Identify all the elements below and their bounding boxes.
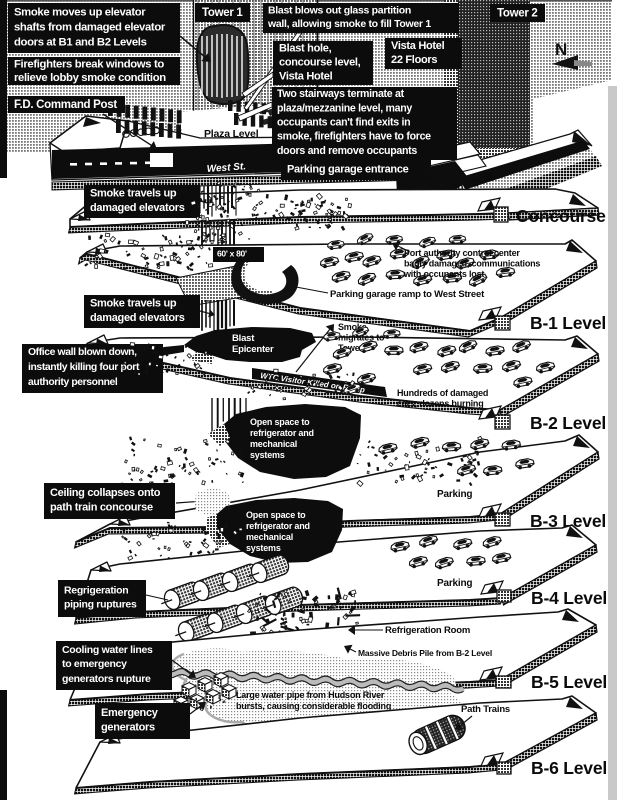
svg-text:Office wall blown down,: Office wall blown down,	[28, 347, 137, 358]
svg-text:Massive Debris Pile from B-2 L: Massive Debris Pile from B-2 Level	[358, 648, 492, 658]
svg-text:damaged elevators: damaged elevators	[90, 312, 185, 324]
svg-text:Blast hole,: Blast hole,	[279, 43, 332, 55]
svg-text:Port authority control center: Port authority control center	[404, 248, 520, 258]
svg-text:wall, allowing smoke to fill T: wall, allowing smoke to fill Tower 1	[267, 18, 431, 30]
svg-text:Parking garage ramp to West St: Parking garage ramp to West Street	[330, 289, 485, 300]
svg-text:B-4 Level: B-4 Level	[531, 588, 607, 608]
svg-text:B-2 Level: B-2 Level	[530, 413, 606, 433]
svg-text:doors and remove occupants: doors and remove occupants	[277, 145, 417, 157]
svg-text:refrigerator and: refrigerator and	[246, 521, 310, 531]
svg-text:authority personnel: authority personnel	[28, 377, 118, 388]
svg-text:N: N	[555, 40, 567, 59]
svg-text:Cooling water lines: Cooling water lines	[62, 644, 153, 656]
svg-text:doors at B1 and B2 Levels: doors at B1 and B2 Levels	[14, 36, 147, 48]
svg-text:plaza/mezzanine level, many: plaza/mezzanine level, many	[277, 102, 412, 114]
svg-text:mechanical: mechanical	[250, 439, 297, 449]
svg-text:cars, dozens burning: cars, dozens burning	[397, 399, 484, 409]
svg-text:badly damaged, communications: badly damaged, communications	[404, 259, 540, 269]
svg-text:concourse level,: concourse level,	[279, 57, 361, 69]
svg-text:damaged elevators: damaged elevators	[90, 202, 185, 214]
svg-text:60' x 80': 60' x 80'	[217, 249, 247, 259]
svg-text:smoke, firefighters have to fo: smoke, firefighters have to force	[277, 131, 431, 143]
svg-text:Large water pipe from Hudson R: Large water pipe from Hudson River	[236, 690, 385, 700]
svg-text:B-1 Level: B-1 Level	[530, 313, 606, 333]
svg-text:Smoke moves up elevator: Smoke moves up elevator	[14, 6, 146, 18]
svg-text:B-5 Level: B-5 Level	[531, 672, 607, 692]
svg-text:generators rupture: generators rupture	[62, 673, 151, 685]
svg-text:Path Trains: Path Trains	[461, 704, 510, 715]
svg-text:22 Floors: 22 Floors	[391, 54, 437, 66]
svg-text:Parking: Parking	[437, 578, 472, 589]
svg-text:with occupants lost: with occupants lost	[403, 269, 484, 279]
svg-text:Tower 2: Tower 2	[497, 8, 538, 20]
svg-text:generators: generators	[101, 722, 155, 734]
svg-text:Parking garage entrance: Parking garage entrance	[287, 164, 409, 176]
svg-text:to emergency: to emergency	[62, 658, 127, 670]
svg-text:Ceiling collapses onto: Ceiling collapses onto	[50, 487, 161, 499]
svg-text:Blast blows out glass partitio: Blast blows out glass partition	[268, 5, 411, 17]
svg-text:shafts from damaged elevator: shafts from damaged elevator	[14, 21, 166, 33]
svg-text:bursts, causing considerable f: bursts, causing considerable flooding	[236, 701, 391, 711]
svg-text:Refrigeration Room: Refrigeration Room	[385, 625, 470, 636]
svg-text:Smoke travels up: Smoke travels up	[90, 298, 177, 310]
svg-text:Parking: Parking	[437, 489, 472, 500]
svg-text:Firefighters break windows to: Firefighters break windows to	[14, 58, 164, 70]
svg-text:occupants can't find exits in: occupants can't find exits in	[277, 117, 410, 129]
svg-text:Vista Hotel: Vista Hotel	[279, 71, 333, 83]
svg-text:piping ruptures: piping ruptures	[64, 599, 137, 611]
svg-text:Two stairways terminate at: Two stairways terminate at	[277, 88, 405, 100]
svg-text:Open space to: Open space to	[250, 417, 310, 427]
svg-text:mechanical: mechanical	[246, 532, 293, 542]
svg-text:Epicenter: Epicenter	[232, 344, 274, 355]
svg-text:path train concourse: path train concourse	[50, 502, 153, 514]
svg-text:Hundreds of damaged: Hundreds of damaged	[397, 388, 488, 398]
svg-text:Concourse: Concourse	[516, 206, 606, 226]
svg-text:Regrigeration: Regrigeration	[64, 585, 128, 597]
svg-text:F.D. Command Post: F.D. Command Post	[14, 99, 117, 111]
svg-text:relieve lobby smoke condition: relieve lobby smoke condition	[14, 72, 166, 84]
svg-text:Tower 1: Tower 1	[202, 7, 243, 19]
svg-text:B-6 Level: B-6 Level	[531, 758, 607, 778]
svg-text:Smoke travels up: Smoke travels up	[90, 188, 177, 200]
svg-text:Blast: Blast	[232, 333, 255, 344]
svg-text:refrigerator and: refrigerator and	[250, 428, 314, 438]
svg-text:systems: systems	[250, 450, 285, 460]
svg-text:Open space to: Open space to	[246, 510, 306, 520]
svg-text:systems: systems	[246, 543, 281, 553]
svg-text:Vista Hotel: Vista Hotel	[391, 40, 445, 52]
svg-text:Emergency: Emergency	[101, 707, 159, 719]
